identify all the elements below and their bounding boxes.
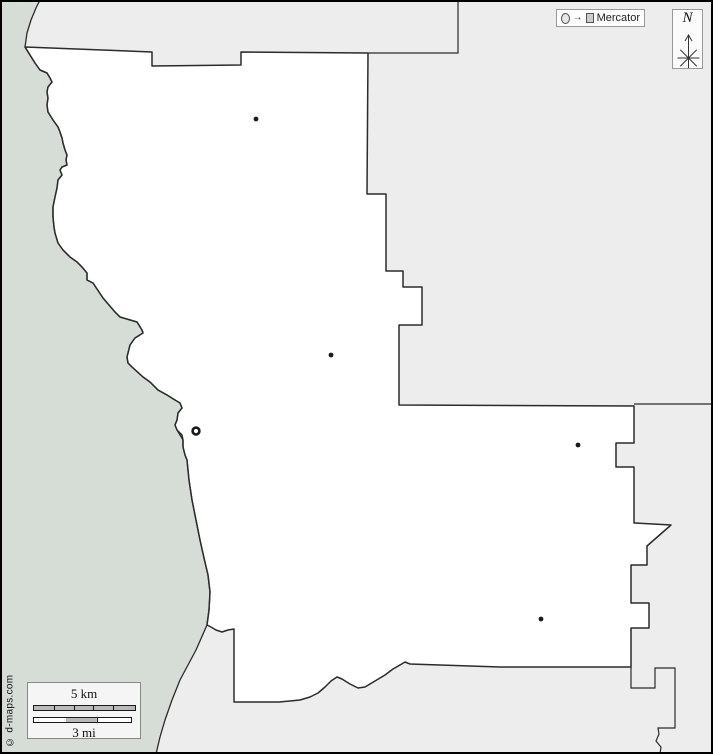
scale-bar: 5 km 3 mi: [27, 682, 141, 739]
city-dot[interactable]: [576, 443, 581, 448]
scale-tick: [97, 718, 98, 722]
scale-tick: [113, 706, 114, 710]
scale-km-label: 5 km: [28, 686, 140, 701]
city-dot[interactable]: [329, 353, 334, 358]
compass-rose: N: [672, 9, 703, 69]
compass-star-icon: [673, 27, 702, 68]
scale-tick: [54, 706, 55, 710]
scale-tick: [74, 706, 75, 710]
scale-tick: [93, 706, 94, 710]
copyright-text: © d-maps.com: [3, 652, 17, 747]
scale-mi-label: 3 mi: [28, 725, 140, 740]
projection-label: Mercator: [597, 12, 640, 24]
city-dot[interactable]: [539, 617, 544, 622]
scale-mi-bar: [33, 717, 132, 723]
projection-arrow-icon: →: [573, 13, 583, 23]
globe-circle-icon: [561, 13, 570, 24]
map-canvas: [0, 0, 713, 754]
scale-km-bar: [33, 705, 136, 711]
scale-segment: [66, 718, 98, 722]
county-seat-marker[interactable]: [193, 428, 200, 435]
map-page: → Mercator N 5 km 3 mi © d-maps.com: [0, 0, 713, 754]
city-dot[interactable]: [254, 117, 259, 122]
north-label: N: [673, 10, 702, 27]
projected-square-icon: [586, 13, 594, 23]
projection-indicator: → Mercator: [556, 9, 645, 27]
